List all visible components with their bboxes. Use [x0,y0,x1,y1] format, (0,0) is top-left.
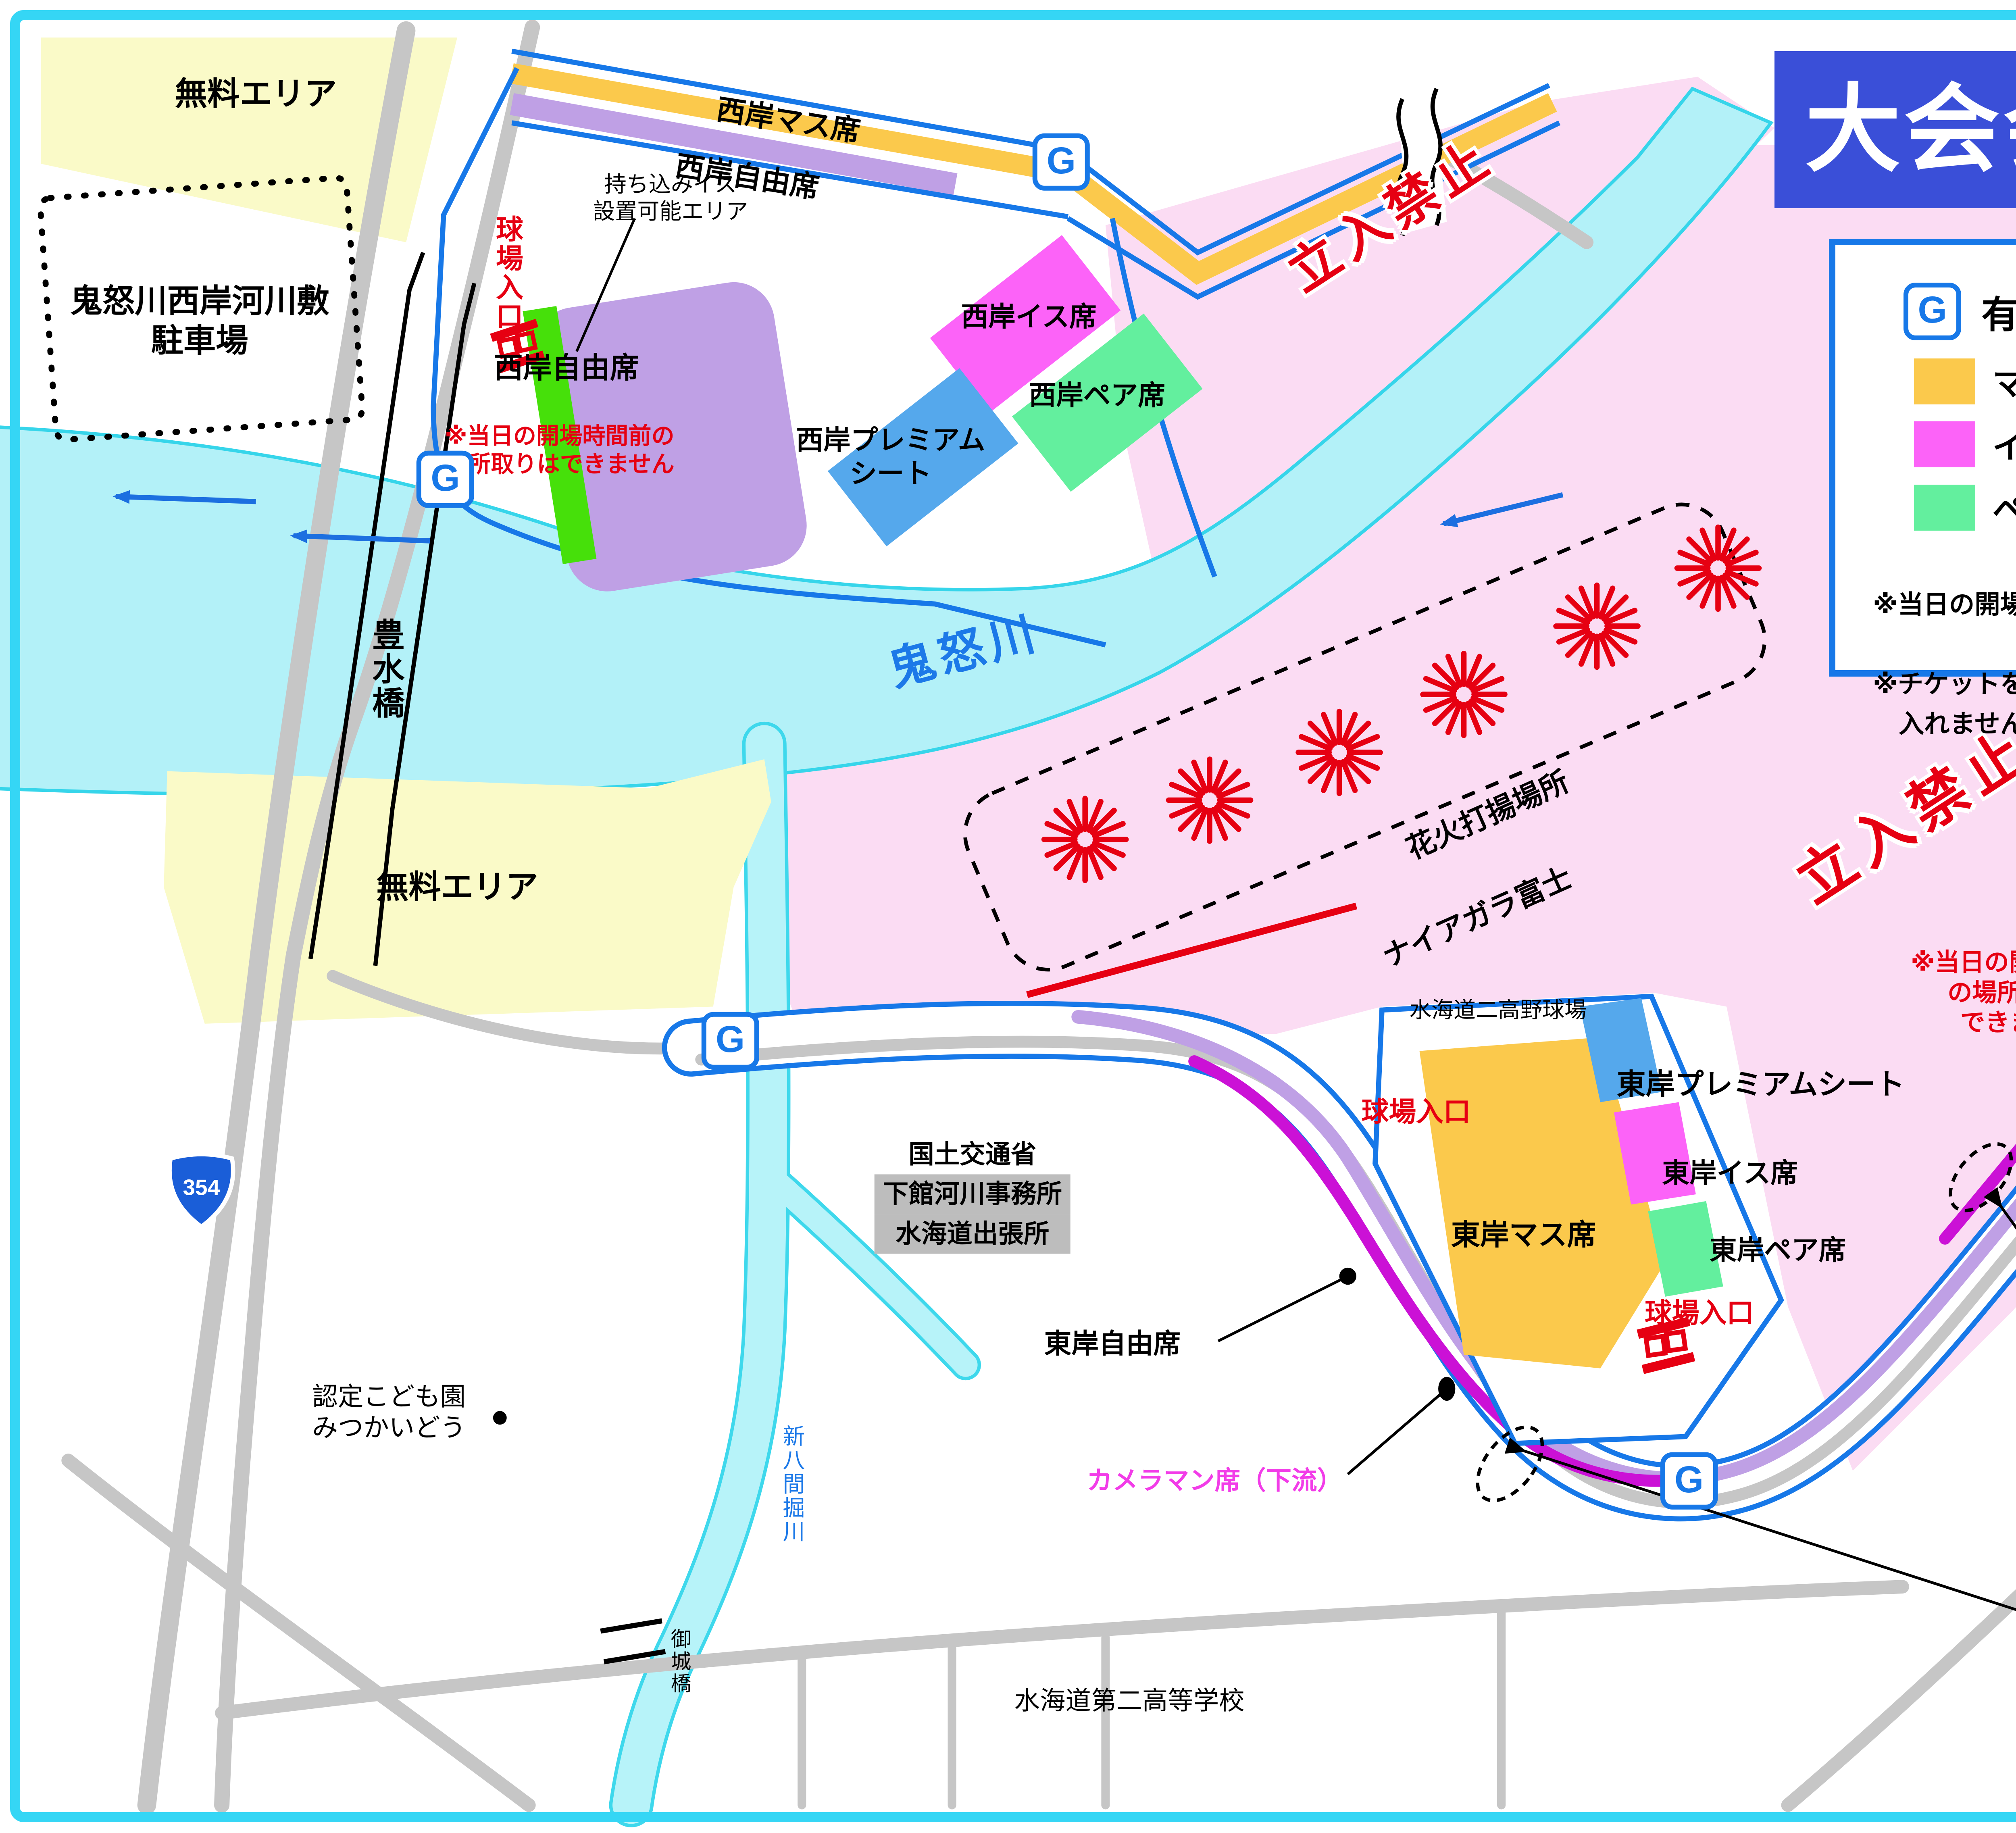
east-note-label: ※当日の開場時間前 の場所取りは できません [1911,948,2016,1038]
masu-swatch [1914,358,1975,404]
free-area-nw-label: 無料エリア [175,74,337,114]
legend-g-icon: G [1904,283,1961,340]
parking-label: 鬼怒川西岸河川敷 駐車場 [70,281,329,360]
legend-box: 有料観覧席エリア G 有料観覧席入口 開場時間14：00 マス席 プレミアムシー… [1829,239,2016,677]
kodomoen-label: 認定こども園 みつかいどう [312,1381,466,1444]
east-pair-label: 東岸ペア席 [1710,1234,1846,1267]
pair-swatch [1914,485,1975,531]
isu-swatch [1914,421,1975,467]
mlit-line1: 国土交通省 [875,1135,1071,1174]
legend-entrance-label: 有料観覧席入口 [1982,284,2016,339]
route-354-label: 354 [183,1174,220,1201]
legend-note-1: ※当日の開場時間前の場所取りはできません [1873,585,2016,625]
shin-hachiken-label: 新八間掘川 [778,1425,805,1544]
masu-label: マス席 [1992,358,2016,405]
east-mass-label: 東岸マス席 [1451,1218,1596,1253]
entrance-g-badge-2: G [417,451,474,508]
entrance-g-badge-3: G [702,1012,759,1069]
page-title: 大会会場周辺地図 [1774,51,2016,208]
mlit-office-label: 国土交通省 下館河川事務所 水海道出張所 [875,1135,1071,1254]
legend-note-2: ※チケットを持っている方以外はエリア内に 入れません [1873,664,2016,744]
entrance-g-badge-4: G [1660,1452,1718,1510]
legend-notes: ※当日の開場時間前の場所取りはできません ※チケットを持っている方以外はエリア内… [1873,546,2016,783]
legend-item-pair: ペア席 [1914,484,2016,531]
stadium-entrance-west-label: 球場入口 [490,215,523,331]
bring-chair-label: 持ち込みイス 設置可能エリア [593,171,748,225]
west-pair-label: 西岸ペア席 [1029,379,1165,412]
isu-label: イス席 [1992,421,2016,468]
legend-entrance-row: G 有料観覧席入口 開場時間14：00 [1904,283,2016,340]
goshiro-bridge-ticks [600,1621,665,1662]
legend-item-masu: マス席 [1914,358,2016,405]
map-canvas [0,0,2016,1833]
west-premium-label: 西岸プレミアム シート [796,424,985,490]
cameraman-down-label: カメラマン席（下流） [1087,1465,1343,1496]
free-area-w-label: 無料エリア [376,867,538,907]
stadium-entrance-east3-label: 球場入口 [1645,1297,1754,1331]
entrance-g-badge-1: G [1033,133,1090,191]
hosui-bridge-label: 豊水橋 [366,618,405,720]
goshiro-bridge-label: 御城橋 [666,1629,691,1695]
east-free-label-west: 東岸自由席 [1044,1328,1181,1361]
mlit-line2: 下館河川事務所 [875,1175,1071,1214]
pair-label: ペア席 [1992,484,2016,531]
venue-map-poster: 無料エリア 鬼怒川西岸河川敷 駐車場 西岸マス席 西岸自由席 球場入口 持ち込み… [0,0,2016,1833]
west-chair-label: 西岸イス席 [961,301,1096,334]
school-label: 水海道第二高等学校 [1014,1685,1245,1716]
west-free-block-label: 西岸自由席 [494,351,639,386]
mlit-line3: 水海道出張所 [875,1214,1071,1254]
ballpark-label: 水海道二高野球場 [1409,996,1587,1023]
east-chair-label: 東岸イス席 [1662,1157,1797,1191]
legend-header: 有料観覧席エリア [1835,220,2016,272]
legend-item-isu: イス席 [1914,421,2016,468]
east-premium-label: 東岸プレミアムシート [1617,1067,1905,1103]
stadium-entrance-east2-label: 球場入口 [1362,1096,1471,1129]
west-note-label: ※当日の開場時間前の 場所取りはできません [445,422,675,478]
